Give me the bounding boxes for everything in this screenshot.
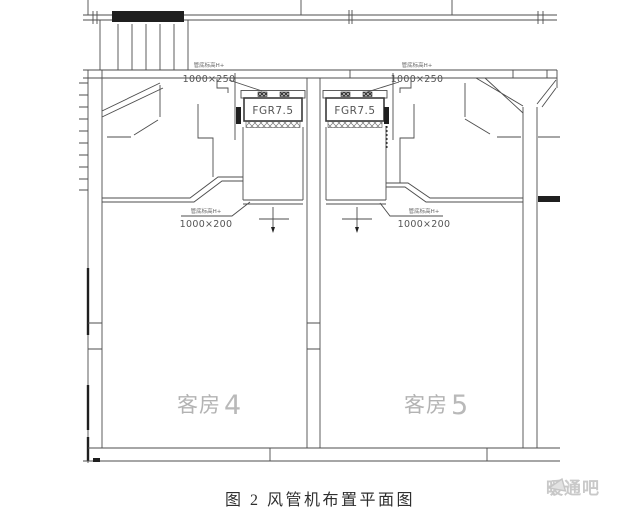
room-label-4: 客房4 bbox=[177, 390, 242, 421]
duct-size-label: 1000×250 bbox=[183, 74, 236, 85]
grille-icon bbox=[258, 92, 267, 97]
figure-caption: 图 2 风管机布置平面图 bbox=[0, 486, 640, 510]
flexible-connector bbox=[246, 122, 300, 128]
corridor-wall bbox=[83, 70, 557, 78]
duct-size-label: 1000×250 bbox=[391, 74, 444, 85]
unit-model-label: FGR7.5 bbox=[334, 105, 375, 117]
bottom-wall bbox=[83, 448, 560, 462]
duct-size-label: 1000×200 bbox=[398, 219, 451, 230]
room-number: 5 bbox=[451, 390, 469, 421]
floor-plan-drawing: FGR7.5 FGR7.5 管底标高H+ 1000×250 管底标高H bbox=[0, 0, 640, 519]
duct-annotation-mid-left: 管底标高H+ 1000×200 bbox=[180, 202, 250, 230]
duct-annotation-mid-right: 管底标高H+ 1000×200 bbox=[380, 203, 450, 230]
fgr-unit-2: FGR7.5 bbox=[323, 73, 411, 204]
duct-note-label: 管底标高H+ bbox=[191, 207, 222, 215]
duct-note-label: 管底标高H+ bbox=[402, 61, 433, 69]
grille-icon bbox=[363, 92, 372, 97]
supply-plenum bbox=[323, 91, 387, 99]
condensate-symbol bbox=[259, 207, 289, 233]
figure-container: FGR7.5 FGR7.5 管底标高H+ 1000×250 管底标高H bbox=[0, 0, 640, 519]
watermark: 暖通吧 bbox=[546, 474, 600, 499]
left-wall bbox=[79, 70, 102, 463]
right-wall bbox=[476, 70, 560, 448]
unit-model-label: FGR7.5 bbox=[252, 105, 293, 117]
supply-plenum bbox=[241, 91, 305, 99]
fgr-unit-1: FGR7.5 bbox=[217, 73, 305, 204]
duct-note-label: 管底标高H+ bbox=[194, 61, 225, 69]
room-name: 客房 bbox=[177, 393, 221, 417]
duct-note-label: 管底标高H+ bbox=[409, 207, 440, 215]
condensate-symbol bbox=[342, 207, 372, 233]
duct-annotation-top-right: 管底标高H+ 1000×250 bbox=[367, 61, 443, 92]
top-exterior-wall bbox=[83, 10, 557, 24]
grille-icon bbox=[280, 92, 289, 97]
room-name: 客房 bbox=[404, 393, 448, 417]
flexible-connector bbox=[328, 122, 382, 128]
wall-solid-segment bbox=[538, 196, 560, 202]
grille-icon bbox=[341, 92, 350, 97]
room-label-5: 客房5 bbox=[404, 390, 469, 421]
unit-flange bbox=[384, 107, 389, 124]
duct-size-label: 1000×200 bbox=[180, 219, 233, 230]
staircase bbox=[100, 20, 188, 70]
party-wall bbox=[307, 78, 320, 448]
wall-solid-segment bbox=[112, 11, 184, 22]
duct-annotation-top-left: 管底标高H+ 1000×250 bbox=[183, 61, 236, 85]
unit-flange bbox=[236, 107, 241, 124]
megaphone-icon bbox=[546, 474, 572, 496]
room-number: 4 bbox=[224, 390, 242, 421]
